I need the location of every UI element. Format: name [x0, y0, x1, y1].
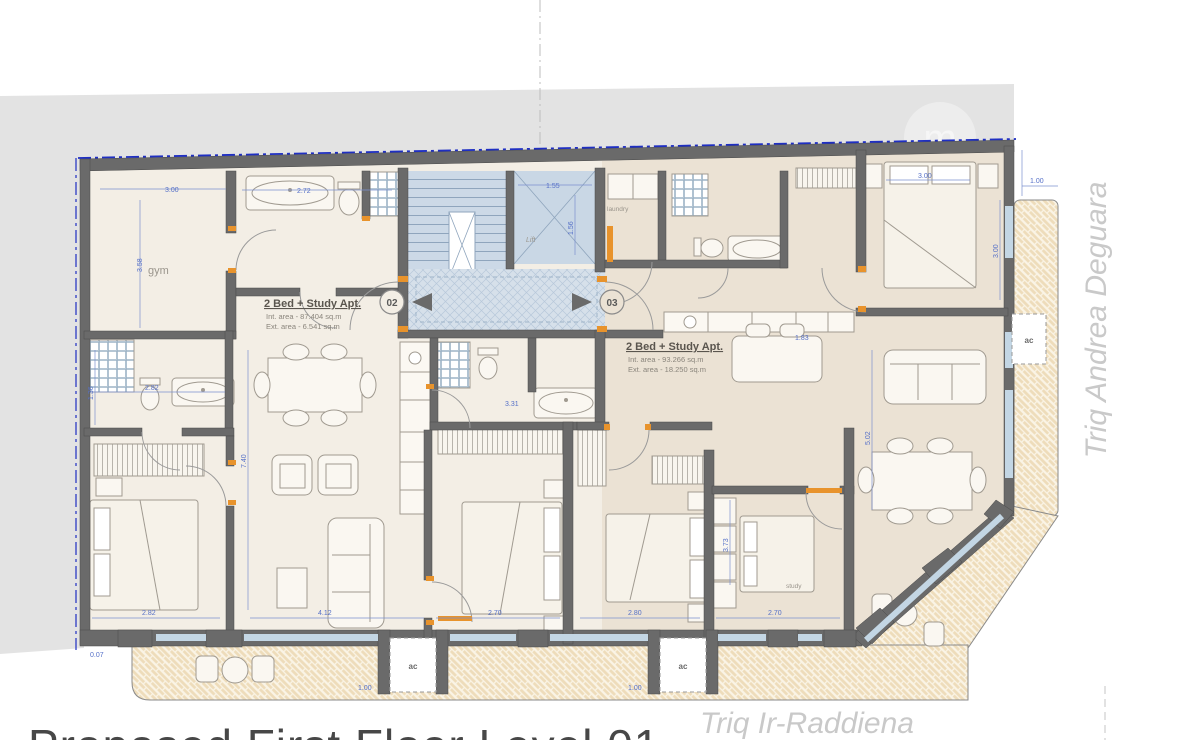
- dim-text: 1.36: [88, 386, 95, 400]
- floorplan-canvas: m: [0, 0, 1179, 740]
- drawing-title: Proposed First Floor Level 01: [28, 719, 660, 740]
- room-label-gym: gym: [148, 265, 169, 277]
- dim-text: 1.56: [568, 221, 575, 235]
- laundry-appliances: [608, 174, 658, 199]
- dim-text: 3.00: [918, 173, 932, 180]
- apt02-int-area: Int. area - 87.404 sq.m: [266, 312, 341, 321]
- sofa: [884, 350, 986, 404]
- kitchen-island: [732, 336, 822, 382]
- dining-table: [872, 452, 972, 510]
- wardrobe: [438, 428, 564, 454]
- unit02-number: 02: [386, 298, 398, 309]
- room-label-laundry: laundry: [607, 206, 629, 213]
- dim-text: 3.58: [137, 258, 144, 272]
- dim-text: 1.00: [628, 685, 642, 692]
- dim-text: 2.72: [297, 188, 311, 195]
- unit03-number: 03: [606, 298, 618, 309]
- wardrobe: [578, 430, 606, 486]
- dim-text: 1.55: [546, 183, 560, 190]
- floorplan-drawing: m: [0, 0, 1179, 740]
- apt03-ext-area: Ext. area - 18.250 sq.m: [628, 365, 706, 374]
- dim-text: 1.83: [795, 335, 809, 342]
- armchair: [272, 455, 312, 495]
- sofa: [328, 518, 384, 628]
- wardrobe: [652, 456, 704, 484]
- armchair: [318, 455, 358, 495]
- ac-label: ac: [679, 662, 688, 671]
- dim-text: 4.12: [318, 610, 332, 617]
- dim-text: 3.31: [505, 401, 519, 408]
- dim-text: 7.40: [241, 454, 248, 468]
- shower: [86, 340, 134, 392]
- shower: [436, 342, 470, 388]
- apt02-name: 2 Bed + Study Apt.: [264, 298, 361, 310]
- apt02-ext-area: Ext. area - 6.541 sq.m: [266, 322, 340, 331]
- dim-text: 1.00: [358, 685, 372, 692]
- ac-label: ac: [1025, 336, 1034, 345]
- wardrobe: [94, 444, 204, 476]
- room-label-study: study: [786, 583, 802, 590]
- dim-text: 3.00: [993, 244, 1000, 258]
- wall-left: [80, 159, 90, 645]
- dim-text: 3.00: [165, 187, 179, 194]
- dim-text: 2.82: [145, 385, 159, 392]
- apt03-name: 2 Bed + Study Apt.: [626, 341, 723, 353]
- bedroom-bottomleft-02: [90, 444, 204, 610]
- shower: [672, 174, 708, 216]
- dim-text: 1.00: [1030, 178, 1044, 185]
- dim-text: 0.07: [90, 652, 104, 659]
- dining-table: [268, 358, 362, 412]
- coffee-table: [277, 568, 307, 608]
- bathroom-top-02: [246, 172, 406, 216]
- street-name-bottom: Triq Ir-Raddiena: [700, 707, 914, 740]
- apt03-int-area: Int. area - 93.266 sq.m: [628, 355, 703, 364]
- room-label-lift: Lift: [526, 237, 536, 244]
- dim-text: 2.80: [628, 610, 642, 617]
- dim-text: 5.02: [865, 431, 872, 445]
- dim-text: 2.82: [142, 610, 156, 617]
- street-name-right: Triq Andrea Deguara: [1080, 182, 1113, 459]
- dim-text: 2.70: [488, 610, 502, 617]
- dim-text: 3.73: [723, 538, 730, 552]
- ac-label: ac: [409, 662, 418, 671]
- dim-text: 2.70: [768, 610, 782, 617]
